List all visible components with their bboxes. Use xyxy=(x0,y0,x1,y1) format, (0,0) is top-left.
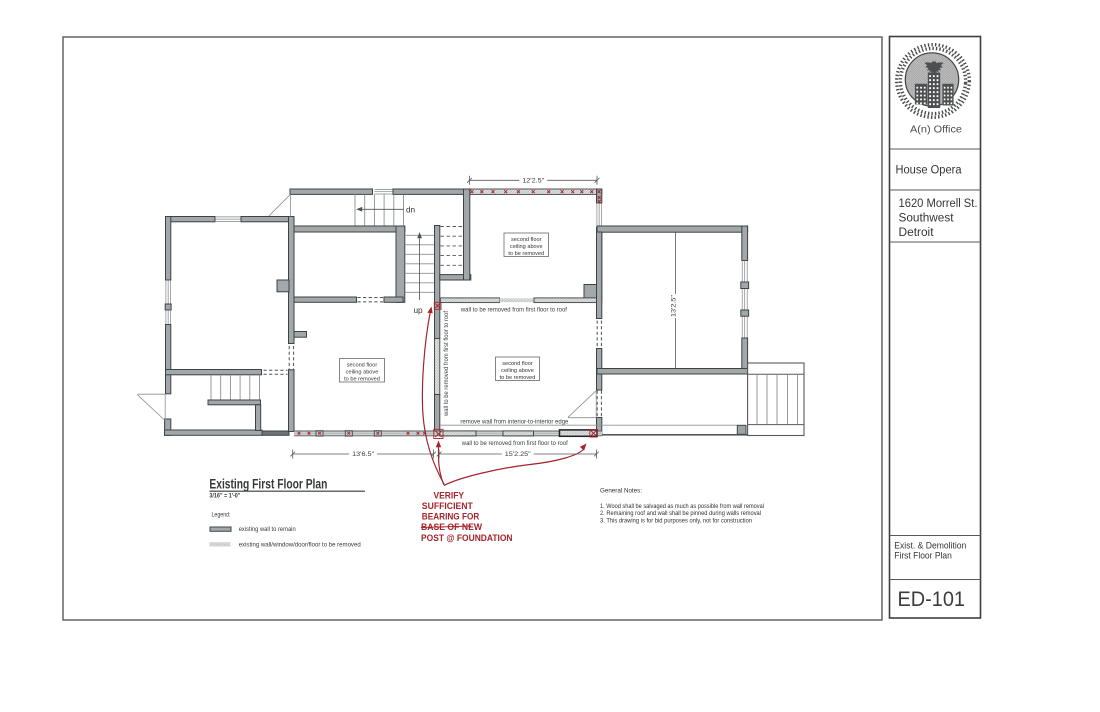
svg-text:2. Remaining roof and wall sha: 2. Remaining roof and wall shall be pinn… xyxy=(600,510,761,517)
svg-text:13'2.5": 13'2.5" xyxy=(671,295,678,317)
svg-text:dn: dn xyxy=(406,206,416,215)
svg-text:to be removed: to be removed xyxy=(500,375,536,381)
svg-text:existing wall/window/door/floo: existing wall/window/door/floor to be re… xyxy=(239,541,361,548)
svg-text:up: up xyxy=(414,306,424,315)
svg-text:15'2.25": 15'2.25" xyxy=(505,451,531,458)
svg-text:wall to be removed from first: wall to be removed from first floor to r… xyxy=(443,311,450,417)
svg-text:12'2.5": 12'2.5" xyxy=(522,178,544,185)
svg-text:Existing First Floor Plan: Existing First Floor Plan xyxy=(209,477,327,492)
svg-text:General Notes:: General Notes: xyxy=(600,487,642,494)
svg-text:Detroit: Detroit xyxy=(899,227,935,239)
svg-text:second floor: second floor xyxy=(511,237,542,243)
svg-text:Southwest: Southwest xyxy=(899,213,955,225)
svg-text:3/16" = 1'-0": 3/16" = 1'-0" xyxy=(209,493,240,499)
svg-text:wall to be removed from first: wall to be removed from first floor to r… xyxy=(461,440,568,447)
svg-text:wall to be removed from first: wall to be removed from first floor to r… xyxy=(460,307,567,314)
svg-text:13'6.5": 13'6.5" xyxy=(352,451,374,458)
svg-text:BEARING FOR: BEARING FOR xyxy=(422,512,480,522)
svg-text:Exist. & Demolition: Exist. & Demolition xyxy=(894,540,966,550)
svg-text:ceiling above: ceiling above xyxy=(346,370,379,376)
svg-text:second floor: second floor xyxy=(347,363,378,369)
svg-text:remove wall from interior-to-i: remove wall from interior-to-interior ed… xyxy=(460,418,569,425)
svg-text:1. Wood shall be salvaged as m: 1. Wood shall be salvaged as much as pos… xyxy=(600,503,764,510)
svg-text:First Floor Plan: First Floor Plan xyxy=(894,551,952,561)
svg-text:ceiling above: ceiling above xyxy=(501,368,534,374)
svg-text:1620 Morrell St.: 1620 Morrell St. xyxy=(899,198,978,210)
svg-text:3. This drawing is for bid pur: 3. This drawing is for bid purposes only… xyxy=(600,517,752,524)
svg-text:VERIFY: VERIFY xyxy=(434,491,465,501)
svg-text:ceiling above: ceiling above xyxy=(510,244,543,250)
svg-text:A(n) Office: A(n) Office xyxy=(910,124,962,136)
svg-text:second floor: second floor xyxy=(502,361,533,367)
svg-text:to be removed: to be removed xyxy=(344,377,380,383)
svg-text:SUFFICIENT: SUFFICIENT xyxy=(422,501,474,511)
svg-text:House Opera: House Opera xyxy=(896,165,963,177)
svg-text:ED-101: ED-101 xyxy=(898,587,966,611)
svg-text:Legend:: Legend: xyxy=(212,512,231,519)
svg-text:POST @ FOUNDATION: POST @ FOUNDATION xyxy=(421,533,513,543)
svg-text:existing wall to remain: existing wall to remain xyxy=(239,526,296,533)
svg-text:to be removed: to be removed xyxy=(508,251,544,257)
